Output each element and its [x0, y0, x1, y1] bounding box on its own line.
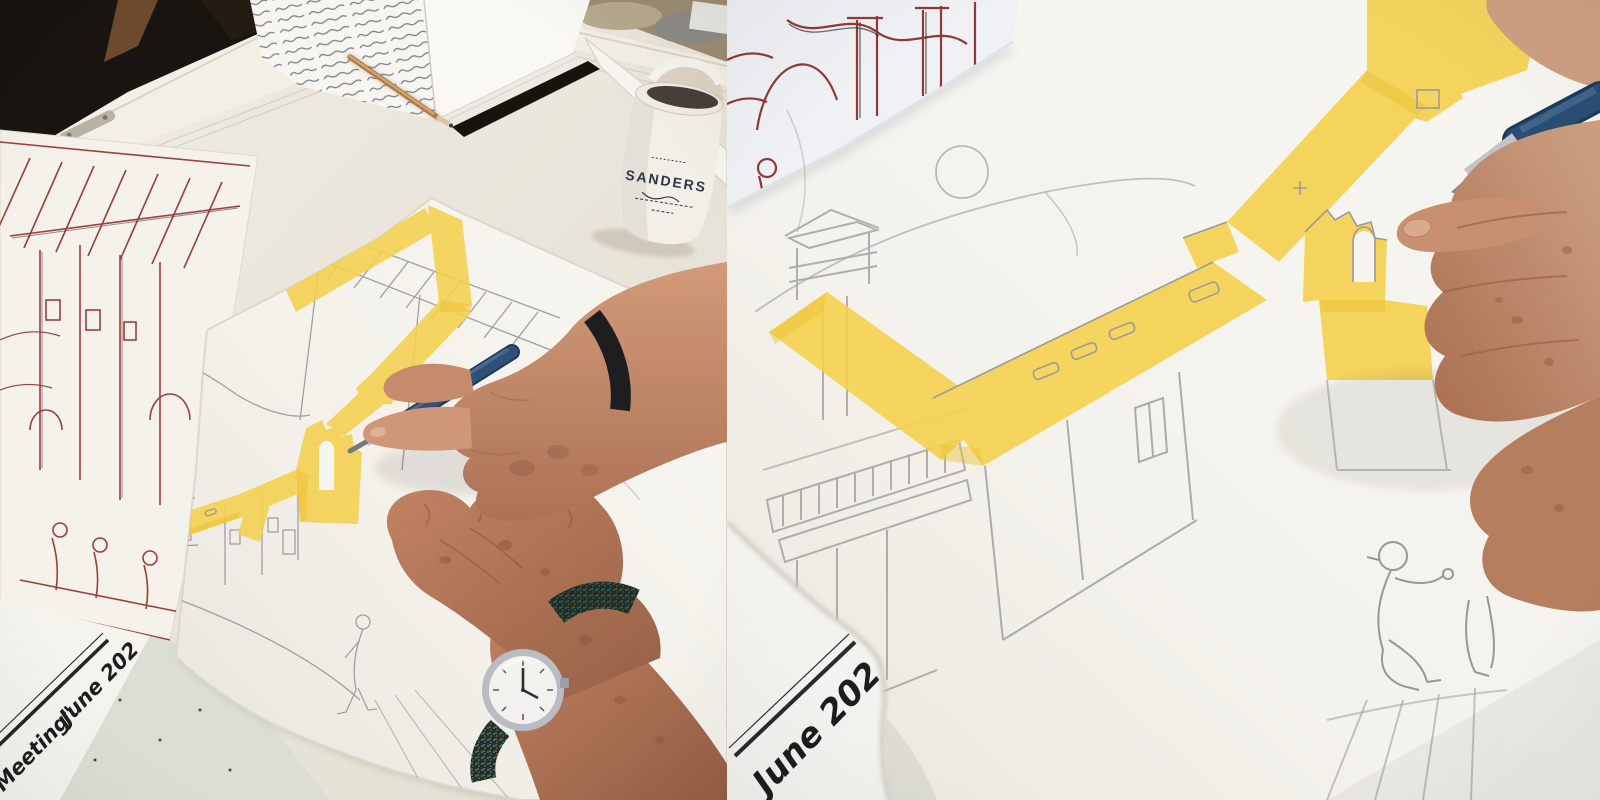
- right-photo-panel: June 202: [727, 0, 1600, 800]
- two-frame-photo: SANDERS Meeting" June 202: [0, 0, 1600, 800]
- vignette: [0, 0, 727, 800]
- left-photo-panel: SANDERS Meeting" June 202: [0, 0, 727, 800]
- vignette-closeup: [727, 0, 1600, 800]
